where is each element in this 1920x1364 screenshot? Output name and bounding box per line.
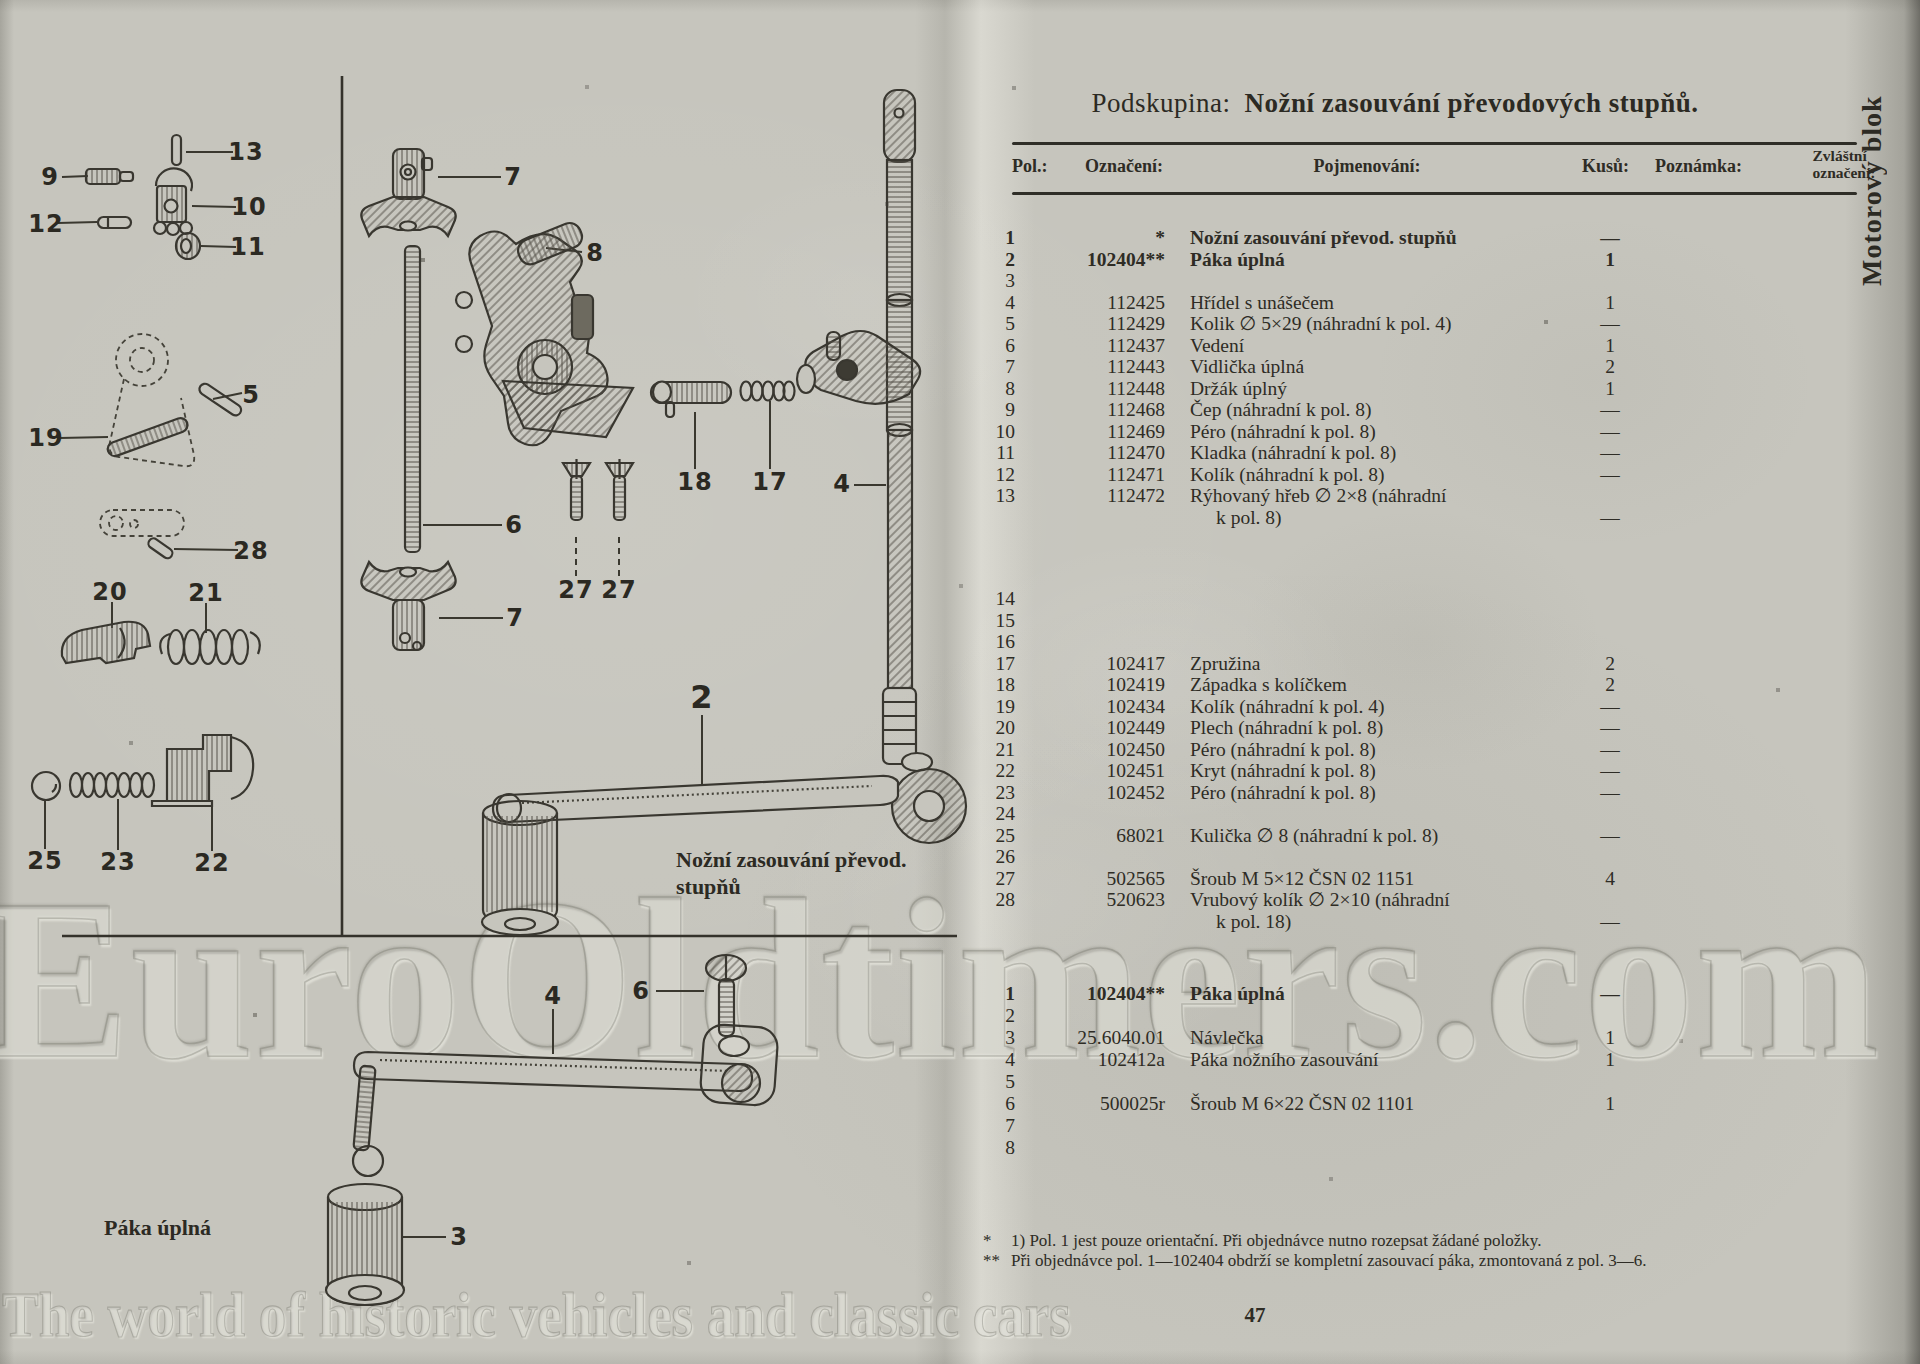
cell-pol: 9: [958, 399, 1015, 421]
callout-label: 4: [833, 470, 851, 498]
caption-line: Nožní zasouvání převod.: [676, 846, 906, 873]
callout-label: 25: [27, 847, 62, 875]
table-row: 15: [958, 610, 1858, 632]
cell-code: 102452: [1020, 782, 1165, 804]
header-special: Zvláštníoznačení:: [1760, 147, 1865, 164]
cell-name: Šroub M 5×12 ČSN 02 1151: [1190, 868, 1560, 890]
cell-name: Páka nožního zasouvání: [1190, 1049, 1560, 1071]
callout-label: 9: [41, 163, 59, 191]
holder-assembly-8: [456, 220, 633, 446]
cell-pol: 26: [958, 846, 1015, 868]
cell-code: 25.6040.01: [1020, 1027, 1165, 1049]
table-row: 7112443Vidlička úplná2: [958, 356, 1858, 378]
cell-pol: 20: [958, 717, 1015, 739]
header-pol: Pol.:: [1012, 156, 1048, 177]
cell-pol: 6: [958, 1093, 1015, 1115]
cell-name: Čep (náhradní k pol. 8): [1190, 399, 1560, 421]
cell-pol: 2: [958, 1005, 1015, 1027]
footnote-line: *1) Pol. 1 jest pouze orientační. Při ob…: [983, 1231, 1843, 1251]
cell-qty: 1: [1550, 249, 1670, 271]
screw-27-left: [563, 459, 590, 520]
table-row: 28520623Vrubový kolík ∅ 2×10 (náhradní: [958, 889, 1858, 911]
rubber-peg-3: [326, 1184, 404, 1305]
table-row: 16: [958, 631, 1858, 653]
ball-25: [32, 772, 60, 800]
table-row: 24: [958, 803, 1858, 825]
cell-pol: 17: [958, 653, 1015, 675]
table-row: 8112448Držák úplný1: [958, 378, 1858, 400]
footnote-line: **Při objednávce pol. 1—102404 obdrží se…: [983, 1251, 1843, 1271]
cell-qty: —: [1550, 825, 1670, 847]
cell-pol: 7: [958, 1115, 1015, 1137]
cell-name: Péro (náhradní k pol. 8): [1190, 739, 1560, 761]
table-row: 22102451Kryt (náhradní k pol. 8)—: [958, 760, 1858, 782]
header-name: Pojmenování:: [1262, 156, 1472, 177]
cell-pol: 23: [958, 782, 1015, 804]
cell-code: 102412a: [1020, 1049, 1165, 1071]
callout-label: 20: [92, 578, 127, 606]
cell-pol: 11: [958, 442, 1015, 464]
callout-label: 6: [505, 511, 523, 539]
table-row: 19102434Kolík (náhradní k pol. 4)—: [958, 696, 1858, 718]
footnote-marker: **: [983, 1251, 1007, 1271]
table-row: 4102412aPáka nožního zasouvání1: [958, 1049, 1858, 1071]
callout-label: 28: [233, 537, 268, 565]
spring-21: [160, 630, 260, 664]
roller-11: [176, 233, 200, 259]
shaft-with-carrier-4: [797, 90, 920, 764]
diagram-caption-main: Nožní zasouvání převod. stupňů: [676, 846, 906, 900]
table-header-row: Pol.: Označení: Pojmenování: Kusů: Pozná…: [1012, 152, 1857, 196]
cell-code: 112471: [1020, 464, 1165, 486]
pedal-lever-2: [482, 753, 966, 935]
cell-name: k pol. 8): [1216, 507, 1586, 529]
table-row: 14: [958, 588, 1858, 610]
cell-code: 520623: [1020, 889, 1165, 911]
cell-code: 102417: [1020, 653, 1165, 675]
cell-name: Páka úplná: [1190, 983, 1560, 1005]
cell-pol: 1: [958, 227, 1015, 249]
table-row: 1*Nožní zasouvání převod. stupňů—: [958, 227, 1858, 249]
callout-label: 27: [558, 576, 593, 604]
diagram-caption-lower: Páka úplná: [104, 1214, 211, 1241]
cell-name: Kolík (náhradní k pol. 4): [1190, 696, 1560, 718]
cell-code: 112468: [1020, 399, 1165, 421]
sheet-metal-20: [62, 622, 150, 663]
cell-pol: 24: [958, 803, 1015, 825]
callout-label: 7: [506, 604, 524, 632]
callout-label: 4: [544, 982, 562, 1010]
cell-code: 500025r: [1020, 1093, 1165, 1115]
table-row: 9112468Čep (náhradní k pol. 8)—: [958, 399, 1858, 421]
cell-qty: —: [1550, 227, 1670, 249]
cell-name: Plech (náhradní k pol. 8): [1190, 717, 1560, 739]
callout-label: 13: [228, 138, 263, 166]
page-title: Podskupina:Nožní zasouvání převodových s…: [1000, 88, 1790, 119]
table-row: 23102452Péro (náhradní k pol. 8)—: [958, 782, 1858, 804]
cell-name: Kladka (náhradní k pol. 8): [1190, 442, 1560, 464]
cell-name: Páka úplná: [1190, 249, 1560, 271]
table-row: 13112472Rýhovaný hřeb ∅ 2×8 (náhradní: [958, 485, 1858, 507]
cell-name: Šroub M 6×22 ČSN 02 1101: [1190, 1093, 1560, 1115]
cell-name: Držák úplný: [1190, 378, 1560, 400]
cell-name: Nožní zasouvání převod. stupňů: [1190, 227, 1560, 249]
cell-code: 112429: [1020, 313, 1165, 335]
rolled-clip-10: [154, 168, 192, 235]
cell-qty: —: [1550, 464, 1670, 486]
cell-name: Kolík (náhradní k pol. 8): [1190, 464, 1560, 486]
cell-name: Péro (náhradní k pol. 8): [1190, 782, 1560, 804]
cell-name: Kolik ∅ 5×29 (náhradní k pol. 4): [1190, 313, 1560, 335]
cell-pol: 6: [958, 335, 1015, 357]
cell-name: Kulička ∅ 8 (náhradní k pol. 8): [1190, 825, 1560, 847]
cell-pol: 28: [958, 889, 1015, 911]
cell-code: 102450: [1020, 739, 1165, 761]
cell-qty: 2: [1550, 653, 1670, 675]
table-row: 12112471Kolík (náhradní k pol. 8)—: [958, 464, 1858, 486]
cell-qty: —: [1550, 983, 1670, 1005]
cell-code: 112472: [1020, 485, 1165, 507]
cell-pol: 3: [958, 1027, 1015, 1049]
callout-label: 17: [752, 468, 787, 496]
latch-pin-18: [651, 382, 731, 418]
table-row: 2: [958, 1005, 1858, 1027]
callout-label: 2: [690, 678, 713, 716]
callout-label: 18: [677, 468, 712, 496]
callout-label: 7: [504, 163, 522, 191]
cell-qty: 1: [1550, 378, 1670, 400]
cell-code: 112425: [1020, 292, 1165, 314]
serrated-pin-19: [106, 416, 190, 458]
cell-code: 112469: [1020, 421, 1165, 443]
ghost-plate-outline: [100, 510, 184, 536]
spring-23: [70, 773, 154, 797]
cell-pol: 19: [958, 696, 1015, 718]
table-row-wrap: k pol. 18)—: [958, 911, 1858, 933]
table-row: 325.6040.01Návlečka1: [958, 1027, 1858, 1049]
cell-name: Západka s kolíčkem: [1190, 674, 1560, 696]
cell-pol: 21: [958, 739, 1015, 761]
table-row: 1102404**Páka úplná—: [958, 983, 1858, 1005]
callout-label: 11: [230, 233, 265, 261]
cell-qty: —: [1550, 313, 1670, 335]
table-row: 26: [958, 846, 1858, 868]
cell-name: Hřídel s unášečem: [1190, 292, 1560, 314]
subgroup-title: Nožní zasouvání převodových stupňů.: [1244, 88, 1698, 118]
lever-arm-4: [353, 1023, 779, 1176]
cell-qty: 4: [1550, 868, 1670, 890]
cell-pol: 15: [958, 610, 1015, 632]
table-row: 2102404**Páka úplná1: [958, 249, 1858, 271]
table-row: 4112425Hřídel s unášečem1: [958, 292, 1858, 314]
cell-qty: 1: [1550, 1027, 1670, 1049]
spring-17: [741, 382, 795, 401]
callout-label: 23: [100, 848, 135, 876]
cell-qty: 1: [1550, 335, 1670, 357]
central-assembly: [361, 90, 966, 935]
cell-name: Rýhovaný hřeb ∅ 2×8 (náhradní: [1190, 485, 1560, 507]
cell-name: Návlečka: [1190, 1027, 1560, 1049]
table-row: 3: [958, 270, 1858, 292]
cell-qty: 1: [1550, 292, 1670, 314]
cell-code: 102404**: [1020, 983, 1165, 1005]
cell-code: 102451: [1020, 760, 1165, 782]
table-row: 21102450Péro (náhradní k pol. 8)—: [958, 739, 1858, 761]
cell-pol: 16: [958, 631, 1015, 653]
cell-pol: 3: [958, 270, 1015, 292]
cell-name: Vedení: [1190, 335, 1560, 357]
cell-code: *: [1020, 227, 1165, 249]
callout-label: 10: [231, 193, 266, 221]
cell-qty: —: [1550, 696, 1670, 718]
table-row: 6500025rŠroub M 6×22 ČSN 02 11011: [958, 1093, 1858, 1115]
cell-qty: —: [1550, 911, 1670, 933]
cell-code: 102449: [1020, 717, 1165, 739]
threaded-rod-6: [405, 246, 420, 552]
header-code: Označení:: [1085, 156, 1163, 177]
cell-qty: 2: [1550, 674, 1670, 696]
cell-qty: —: [1550, 442, 1670, 464]
cell-pol: 18: [958, 674, 1015, 696]
table-row: 2568021Kulička ∅ 8 (náhradní k pol. 8)—: [958, 825, 1858, 847]
cell-pol: 8: [958, 378, 1015, 400]
callout-label: 3: [450, 1223, 468, 1251]
cell-code: 112443: [1020, 356, 1165, 378]
cell-pol: 2: [958, 249, 1015, 271]
callout-label: 22: [194, 849, 229, 877]
table-row: 27502565Šroub M 5×12 ČSN 02 11514: [958, 868, 1858, 890]
screw-27-right: [606, 459, 633, 520]
cell-pol: 27: [958, 868, 1015, 890]
table-header-rule: [1012, 192, 1857, 195]
callout-label: 19: [28, 424, 63, 452]
notched-pin-28: [146, 536, 174, 560]
cell-pol: 10: [958, 421, 1015, 443]
table-row: 20102449Plech (náhradní k pol. 8)—: [958, 717, 1858, 739]
stepped-pin-9: [86, 169, 133, 184]
pin-12: [98, 217, 131, 228]
cell-pol: 1: [958, 983, 1015, 1005]
cell-qty: —: [1550, 399, 1670, 421]
table-row: 18102419Západka s kolíčkem2: [958, 674, 1858, 696]
cell-qty: 2: [1550, 356, 1670, 378]
subgroup-label: Podskupina:: [1091, 88, 1230, 118]
cover-22: [152, 735, 253, 806]
table-row: 5112429Kolik ∅ 5×29 (náhradní k pol. 4)—: [958, 313, 1858, 335]
cell-qty: 1: [1550, 1049, 1670, 1071]
caption-line: stupňů: [676, 873, 906, 900]
cell-code: 502565: [1020, 868, 1165, 890]
header-qty: Kusů:: [1582, 156, 1629, 177]
table-row: 11112470Kladka (náhradní k pol. 8)—: [958, 442, 1858, 464]
cell-name: Péro (náhradní k pol. 8): [1190, 421, 1560, 443]
table-row: 10112469Péro (náhradní k pol. 8)—: [958, 421, 1858, 443]
pin-13: [172, 135, 181, 165]
cell-qty: —: [1550, 421, 1670, 443]
callout-label: 12: [28, 210, 63, 238]
table-row: 17102417Zpružina2: [958, 653, 1858, 675]
cell-code: 102419: [1020, 674, 1165, 696]
cell-code: 68021: [1020, 825, 1165, 847]
pin-5: [197, 382, 243, 418]
cell-qty: —: [1550, 717, 1670, 739]
cell-name: Zpružina: [1190, 653, 1560, 675]
parts-table-section-2: 1102404**Páka úplná—2325.6040.01Návlečka…: [958, 983, 1858, 1159]
small-parts-column: [32, 135, 260, 806]
cell-code: 112470: [1020, 442, 1165, 464]
cell-code: 112448: [1020, 378, 1165, 400]
cell-pol: 22: [958, 760, 1015, 782]
callout-label: 5: [242, 381, 260, 409]
parts-table-section-1: 1*Nožní zasouvání převod. stupňů—2102404…: [958, 227, 1858, 932]
cell-pol: 7: [958, 356, 1015, 378]
cell-qty: —: [1550, 782, 1670, 804]
page-number: 47: [1205, 1303, 1305, 1328]
callout-label: 6: [632, 977, 650, 1005]
cell-qty: —: [1550, 739, 1670, 761]
cell-qty: —: [1550, 507, 1670, 529]
cell-pol: 5: [958, 313, 1015, 335]
table-row: 8: [958, 1137, 1858, 1159]
cell-name: Vrubový kolík ∅ 2×10 (náhradní: [1190, 889, 1560, 911]
cell-code: 112437: [1020, 335, 1165, 357]
cell-pol: 25: [958, 825, 1015, 847]
cell-pol: 12: [958, 464, 1015, 486]
footnote-text: Při objednávce pol. 1—102404 obdrží se k…: [1011, 1251, 1646, 1270]
cell-qty: —: [1550, 760, 1670, 782]
cell-code: 102404**: [1020, 249, 1165, 271]
cell-pol: 5: [958, 1071, 1015, 1093]
callout-label: 27: [601, 576, 636, 604]
fork-upper-7: [361, 149, 455, 236]
cell-pol: 8: [958, 1137, 1015, 1159]
table-row: 6112437Vedení1: [958, 335, 1858, 357]
table-row: 5: [958, 1071, 1858, 1093]
cell-pol: 4: [958, 1049, 1015, 1071]
callout-label: 8: [586, 239, 604, 267]
side-tab-label: Motorový blok: [1856, 68, 1906, 313]
cell-name: Kryt (náhradní k pol. 8): [1190, 760, 1560, 782]
cell-name: Vidlička úplná: [1190, 356, 1560, 378]
cell-pol: 4: [958, 292, 1015, 314]
footnote-marker: *: [983, 1231, 1007, 1251]
cell-code: 102434: [1020, 696, 1165, 718]
table-row-wrap: k pol. 8)—: [958, 507, 1858, 529]
catalog-page: EuroOldtimers.com The world of historic …: [0, 0, 1920, 1364]
header-note: Poznámka:: [1655, 156, 1742, 177]
table-row: 7: [958, 1115, 1858, 1137]
exploded-diagram: [0, 0, 980, 1364]
table-top-rule: [1012, 142, 1857, 145]
cell-pol: 13: [958, 485, 1015, 507]
cell-qty: 1: [1550, 1093, 1670, 1115]
callout-label: 21: [188, 579, 223, 607]
cell-name: k pol. 18): [1216, 911, 1586, 933]
fork-lower-7: [361, 562, 455, 650]
cell-pol: 14: [958, 588, 1015, 610]
footnote-text: 1) Pol. 1 jest pouze orientační. Při obj…: [1011, 1231, 1541, 1250]
footnotes: *1) Pol. 1 jest pouze orientační. Při ob…: [983, 1231, 1843, 1270]
